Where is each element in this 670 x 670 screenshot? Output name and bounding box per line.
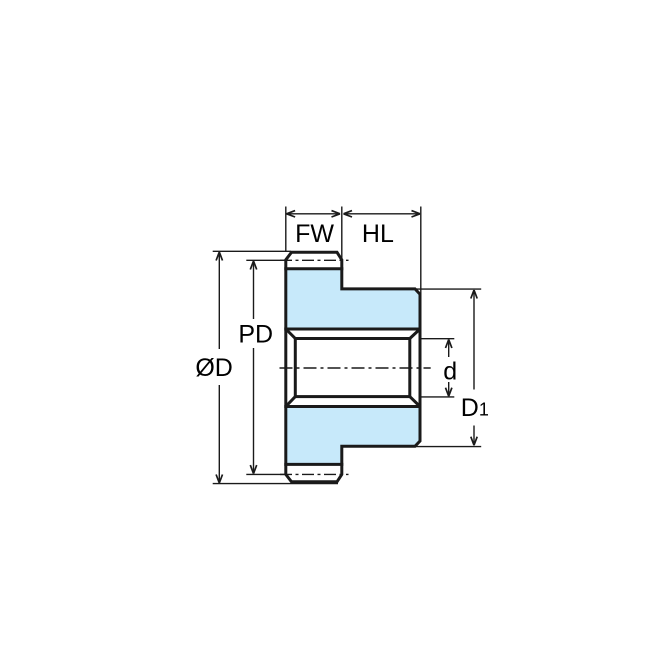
svg-text:1: 1 xyxy=(479,400,489,420)
svg-text:ØD: ØD xyxy=(195,354,233,382)
svg-text:D: D xyxy=(461,394,479,422)
svg-text:PD: PD xyxy=(238,321,273,349)
svg-text:d: d xyxy=(443,358,457,386)
svg-text:FW: FW xyxy=(295,220,334,248)
svg-text:HL: HL xyxy=(362,220,394,248)
